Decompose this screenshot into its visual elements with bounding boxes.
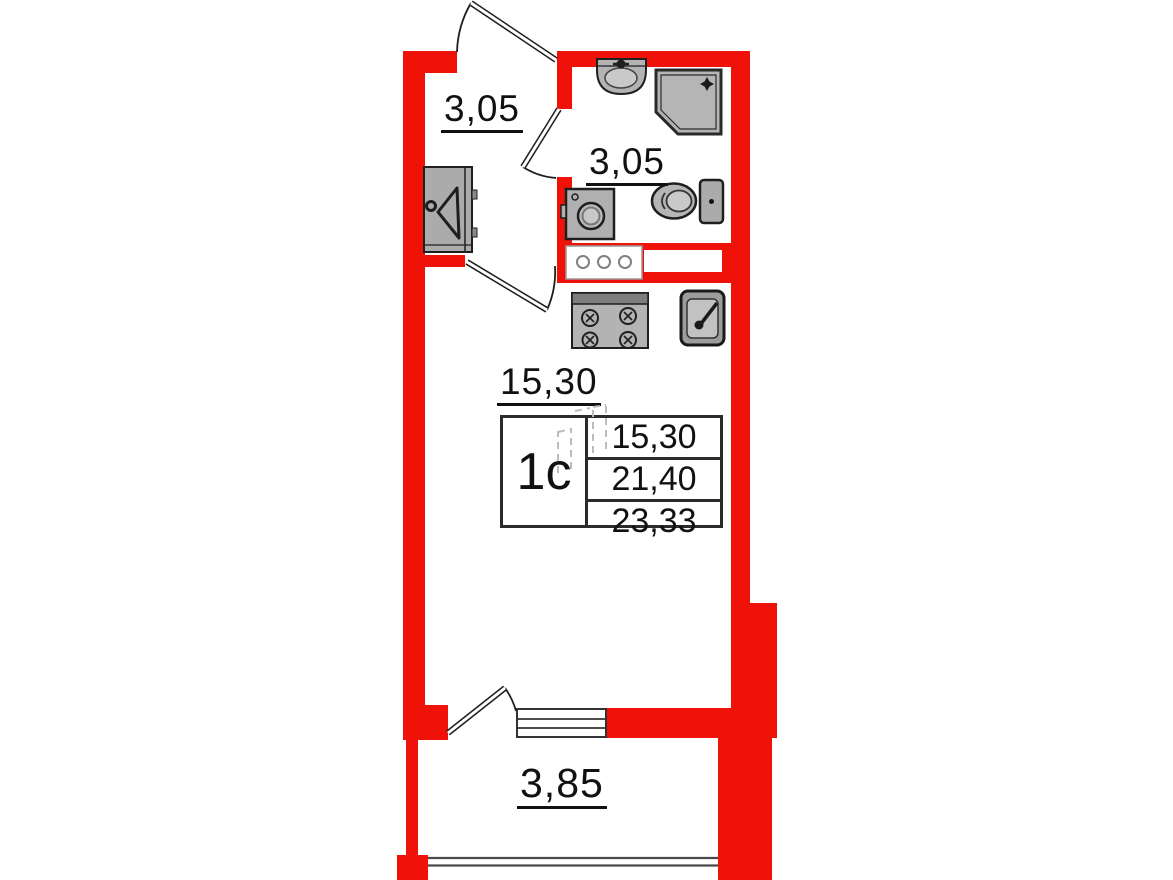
shower-icon <box>656 70 721 134</box>
hallway-area-label: 3,05 <box>441 90 523 133</box>
balcony-window-icon <box>517 709 606 737</box>
total-area-value: 23,33 <box>588 502 720 541</box>
living-room-area-label: 15,30 <box>497 363 601 406</box>
wall-segment <box>403 705 448 740</box>
washbasin-icon <box>597 59 646 94</box>
wall-segment <box>731 51 750 603</box>
floor-plan-canvas: 3,05 3,05 15,30 3,85 1с 15,30 21,40 23,3… <box>0 0 1173 880</box>
entrance-door-icon <box>457 3 556 60</box>
wall-segment <box>557 243 731 283</box>
unit-type-label: 1с <box>503 418 588 525</box>
wall-segment <box>403 51 457 73</box>
balcony-door-icon <box>448 688 516 733</box>
unit-info-table: 1с 15,30 21,40 23,33 <box>500 415 723 528</box>
balcony-area-label: 3,85 <box>517 762 607 809</box>
wall-segment <box>718 737 772 880</box>
wall-segment <box>403 255 465 267</box>
toilet-icon <box>652 180 723 223</box>
kitchen-sink-icon <box>681 291 724 345</box>
washing-machine-icon <box>561 189 614 239</box>
wall-segment <box>557 51 572 109</box>
living-area-value: 15,30 <box>588 418 720 460</box>
wall-segment <box>731 603 777 738</box>
bathroom-door-icon <box>523 109 559 178</box>
bathroom-area-label: 3,05 <box>586 143 668 186</box>
wall-segment <box>557 177 572 244</box>
wardrobe-icon <box>424 167 477 252</box>
vent-shaft-icon <box>566 246 722 279</box>
wall-segment <box>406 740 418 856</box>
unit-area-values: 15,30 21,40 23,33 <box>588 418 720 525</box>
wall-segment <box>557 51 750 67</box>
room-door-icon <box>467 262 555 310</box>
wall-segment <box>403 51 425 707</box>
wall-segment <box>605 708 750 738</box>
wall-segment <box>397 855 428 880</box>
stove-icon <box>572 293 648 348</box>
unit-area-value: 21,40 <box>588 460 720 502</box>
balcony-glazing-icon <box>428 858 718 866</box>
